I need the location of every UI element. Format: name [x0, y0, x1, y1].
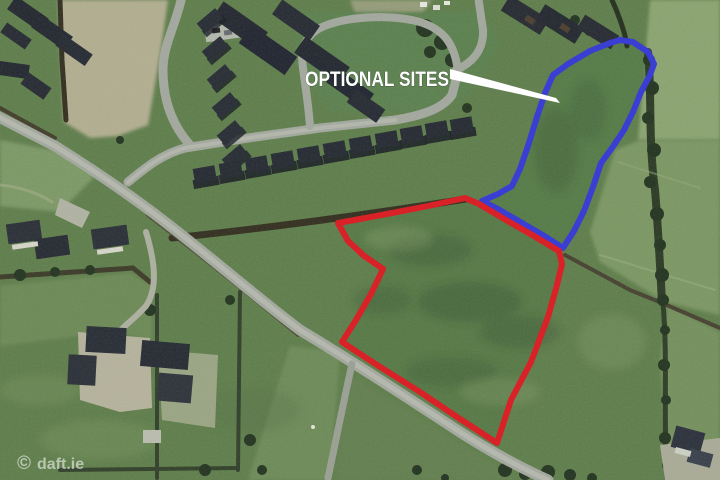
watermark-text: daft.ie — [37, 456, 84, 473]
aerial-photo: OPTIONAL SITES © daft.ie — [0, 0, 720, 480]
watermark-symbol: © — [17, 453, 31, 474]
watermark: © daft.ie — [17, 453, 84, 474]
sites-label: OPTIONAL SITES — [305, 68, 449, 91]
aerial-site-map: OPTIONAL SITES © daft.ie — [0, 0, 720, 480]
